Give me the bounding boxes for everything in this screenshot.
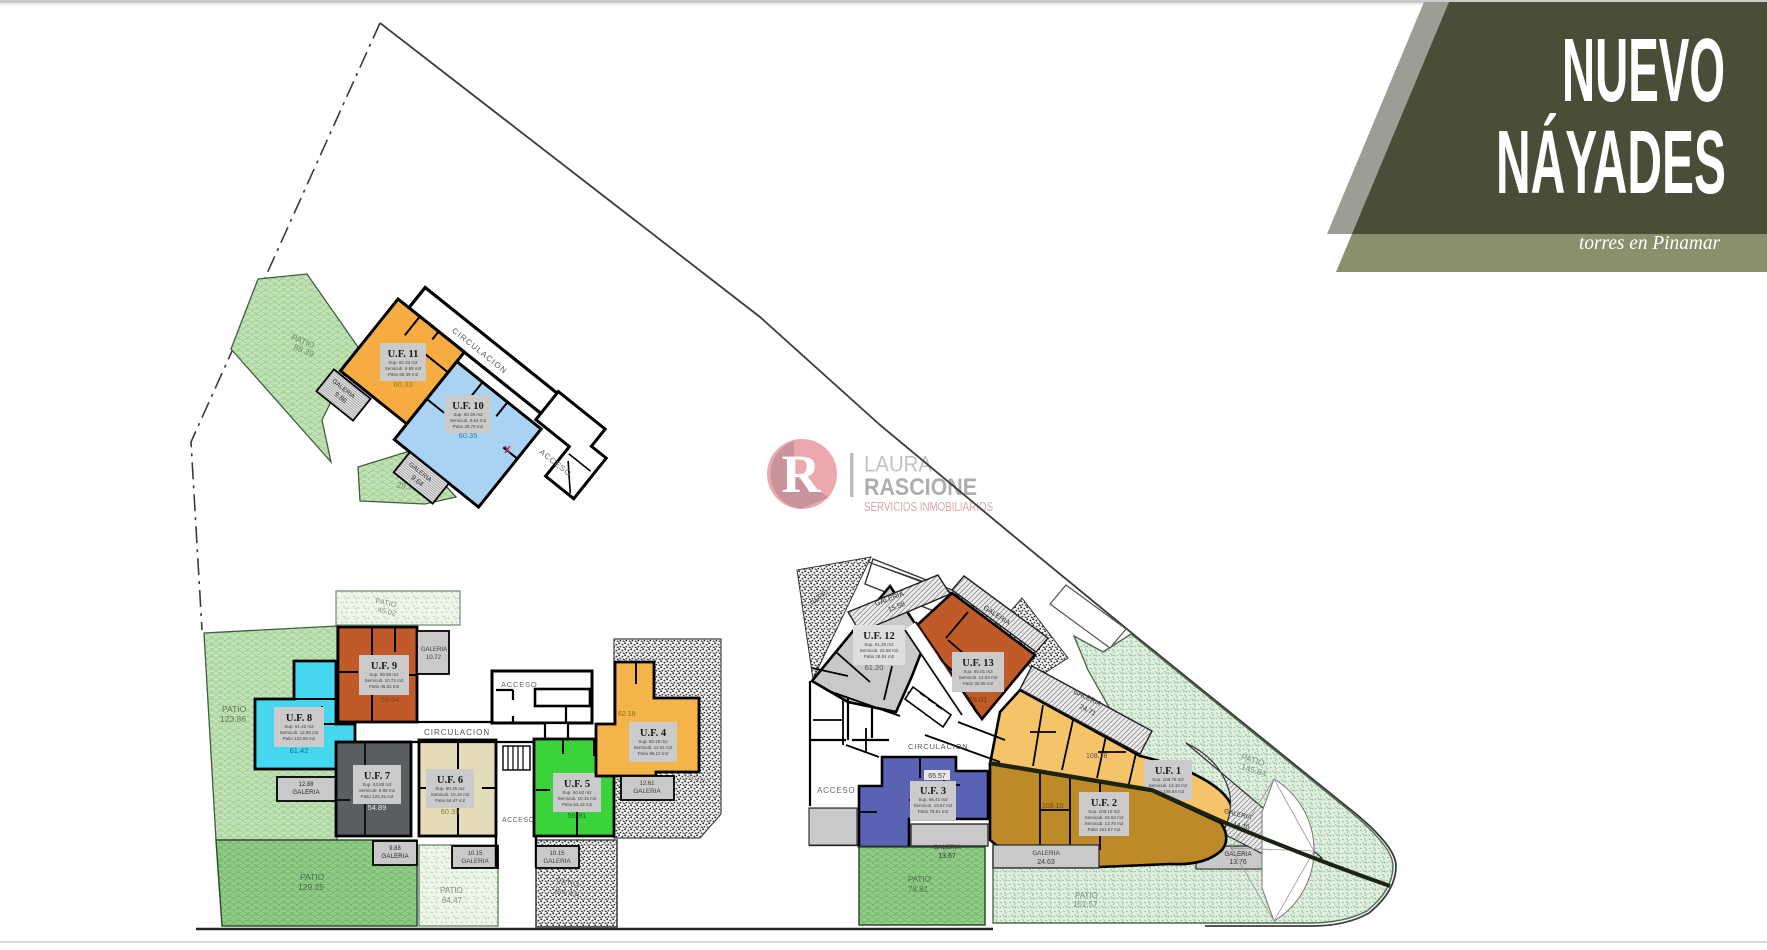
svg-text:NÁYADES: NÁYADES — [1496, 112, 1726, 213]
svg-text:ACCESO: ACCESO — [501, 680, 537, 689]
svg-text:10.15: 10.15 — [467, 851, 483, 857]
svg-text:Semicub. 10.15 m2: Semicub. 10.15 m2 — [431, 792, 470, 797]
svg-text:59.64: 59.64 — [381, 695, 400, 704]
svg-text:12.88: 12.88 — [298, 782, 314, 788]
svg-text:Semicub. 9.88 m2: Semicub. 9.88 m2 — [359, 788, 396, 793]
svg-text:Sup. 61.20 m2: Sup. 61.20 m2 — [864, 642, 894, 647]
svg-text:GALERIA: GALERIA — [933, 844, 961, 851]
svg-text:PATIO: PATIO — [440, 886, 463, 895]
svg-text:62.18: 62.18 — [618, 711, 636, 718]
svg-text:U.F. 10: U.F. 10 — [452, 401, 483, 412]
svg-text:Sup. 60.18 m2: Sup. 60.18 m2 — [638, 739, 668, 744]
svg-text:Semicub. 15.58 m2: Semicub. 15.58 m2 — [860, 648, 899, 653]
svg-text:65.57: 65.57 — [928, 773, 946, 780]
svg-text:Sup. 66.41 m2: Sup. 66.41 m2 — [918, 797, 948, 802]
svg-text:U.F. 3: U.F. 3 — [920, 786, 946, 797]
svg-text:GALERIA: GALERIA — [1224, 851, 1252, 858]
svg-text:LAURA: LAURA — [864, 452, 932, 477]
svg-text:Patio 129.25 m2: Patio 129.25 m2 — [361, 794, 394, 799]
svg-text:PATIO: PATIO — [908, 875, 931, 884]
svg-text:Semicub. 13.67 m2: Semicub. 13.67 m2 — [914, 803, 953, 808]
svg-text:10.15: 10.15 — [549, 851, 565, 857]
svg-text:64.47: 64.47 — [442, 896, 463, 905]
svg-text:Semicub. 9.86 m2: Semicub. 9.86 m2 — [385, 366, 422, 371]
svg-text:Patio 64.47 m2: Patio 64.47 m2 — [435, 798, 466, 803]
svg-text:U.F. 7: U.F. 7 — [364, 771, 390, 782]
svg-text:PATIO: PATIO — [1075, 891, 1098, 900]
svg-text:Semicub. 24.63 m2: Semicub. 24.63 m2 — [1085, 815, 1124, 820]
svg-text:RASCIONE: RASCIONE — [864, 474, 977, 501]
svg-text:Patio 96.12 m2: Patio 96.12 m2 — [638, 751, 669, 756]
svg-text:R: R — [782, 444, 822, 504]
svg-text:Sup. 89.66 m2: Sup. 89.66 m2 — [369, 672, 399, 677]
svg-text:GALERIA: GALERIA — [461, 858, 489, 865]
svg-text:Patio 151.57 m2: Patio 151.57 m2 — [1088, 827, 1121, 832]
svg-text:Semicub. 14.10 m2: Semicub. 14.10 m2 — [1149, 783, 1188, 788]
svg-text:56.91: 56.91 — [568, 811, 587, 820]
svg-text:Patio 45.02 m2: Patio 45.02 m2 — [369, 684, 400, 689]
svg-text:NUEVO: NUEVO — [1562, 21, 1725, 121]
svg-text:Semicub. 12.61 m2: Semicub. 12.61 m2 — [634, 745, 673, 750]
svg-text:PATIO: PATIO — [222, 704, 247, 714]
svg-text:60.33: 60.33 — [394, 380, 413, 389]
svg-text:Patio 88.39 m2: Patio 88.39 m2 — [388, 372, 419, 377]
svg-text:12.61: 12.61 — [639, 781, 655, 787]
svg-text:Patio 29.70 m2: Patio 29.70 m2 — [453, 424, 484, 429]
svg-text:GALERIA: GALERIA — [1032, 850, 1060, 857]
svg-text:Semicub. 10.15 m2: Semicub. 10.15 m2 — [558, 796, 597, 801]
svg-text:U.F. 2: U.F. 2 — [1091, 798, 1117, 809]
svg-text:CIRCULACION: CIRCULACION — [424, 728, 490, 737]
svg-text:GALERIA: GALERIA — [543, 858, 571, 865]
svg-text:U.F. 5: U.F. 5 — [564, 779, 590, 790]
svg-text:Semicub. 12.88 m2: Semicub. 12.88 m2 — [280, 730, 319, 735]
svg-text:Sup. 60.35 m2: Sup. 60.35 m2 — [453, 412, 483, 417]
svg-text:65.01: 65.01 — [969, 695, 988, 704]
svg-text:U.F. 6: U.F. 6 — [437, 775, 463, 786]
svg-text:54.89: 54.89 — [368, 803, 387, 812]
svg-text:13.67: 13.67 — [938, 853, 956, 860]
svg-text:Sup. 109.10 m2: Sup. 109.10 m2 — [1088, 809, 1120, 814]
svg-text:60.35: 60.35 — [459, 431, 478, 440]
svg-text:GALERIA: GALERIA — [292, 789, 320, 796]
svg-text:U.F. 11: U.F. 11 — [388, 349, 419, 360]
svg-text:10.72: 10.72 — [426, 655, 442, 661]
svg-text:Sup. 60.62 m2: Sup. 60.62 m2 — [562, 790, 592, 795]
svg-text:CIRCULACION: CIRCULACION — [908, 742, 968, 751]
svg-text:Patio 32.05 m2: Patio 32.05 m2 — [963, 681, 994, 686]
svg-text:9.88: 9.88 — [389, 846, 401, 852]
svg-text:Sup. 108.78 m2: Sup. 108.78 m2 — [1152, 777, 1184, 782]
svg-text:Patio 123.86 m2: Patio 123.86 m2 — [283, 736, 316, 741]
svg-text:ACCESO: ACCESO — [502, 817, 535, 824]
svg-text:24.63: 24.63 — [1037, 859, 1055, 866]
svg-text:78.81: 78.81 — [908, 885, 929, 894]
svg-text:Semicub. 14.53 m2: Semicub. 14.53 m2 — [959, 675, 998, 680]
svg-text:109.10: 109.10 — [1042, 803, 1064, 810]
svg-text:Sup. 60.35 m2: Sup. 60.35 m2 — [435, 786, 465, 791]
svg-text:Sup. 65.01 m2: Sup. 65.01 m2 — [963, 669, 993, 674]
svg-text:U.F. 12: U.F. 12 — [863, 631, 894, 642]
svg-text:61.20: 61.20 — [865, 663, 884, 672]
svg-text:129.25: 129.25 — [298, 882, 324, 892]
svg-text:ACCESO: ACCESO — [817, 786, 856, 795]
svg-text:108.78: 108.78 — [1086, 753, 1108, 760]
svg-text:60.35: 60.35 — [441, 807, 460, 816]
svg-text:U.F. 9: U.F. 9 — [371, 661, 397, 672]
svg-text:Sup. 63.89 m2: Sup. 63.89 m2 — [362, 782, 392, 787]
svg-text:U.F. 4: U.F. 4 — [640, 728, 667, 739]
svg-text:Patio 64.43 m2: Patio 64.43 m2 — [562, 802, 593, 807]
svg-text:torres en Pinamar: torres en Pinamar — [1579, 232, 1720, 254]
svg-text:Patio 28.91 m2: Patio 28.91 m2 — [864, 654, 895, 659]
svg-text:U.F. 1: U.F. 1 — [1155, 766, 1181, 777]
svg-text:Semicub. 9.64 m2: Semicub. 9.64 m2 — [450, 418, 487, 423]
svg-text:GALERIA: GALERIA — [633, 788, 661, 795]
svg-text:PATIO: PATIO — [300, 872, 325, 882]
svg-text:Patio 78.81 m2: Patio 78.81 m2 — [918, 809, 949, 814]
svg-text:U.F. 8: U.F. 8 — [286, 713, 312, 724]
svg-text:GALERIA: GALERIA — [421, 647, 447, 653]
svg-text:U.F. 13: U.F. 13 — [962, 658, 993, 669]
svg-text:Sup. 60.33 m2: Sup. 60.33 m2 — [388, 360, 418, 365]
svg-text:61.42: 61.42 — [290, 746, 309, 755]
svg-text:Semicub. 10.72 m2: Semicub. 10.72 m2 — [365, 678, 404, 683]
svg-text:Semicub. 13.76 m2: Semicub. 13.76 m2 — [1085, 821, 1124, 826]
svg-text:GALERIA: GALERIA — [381, 853, 409, 860]
svg-text:123.86: 123.86 — [220, 714, 246, 724]
svg-text:Sup. 61.42 m2: Sup. 61.42 m2 — [284, 724, 314, 729]
svg-text:151.57: 151.57 — [1073, 900, 1098, 909]
